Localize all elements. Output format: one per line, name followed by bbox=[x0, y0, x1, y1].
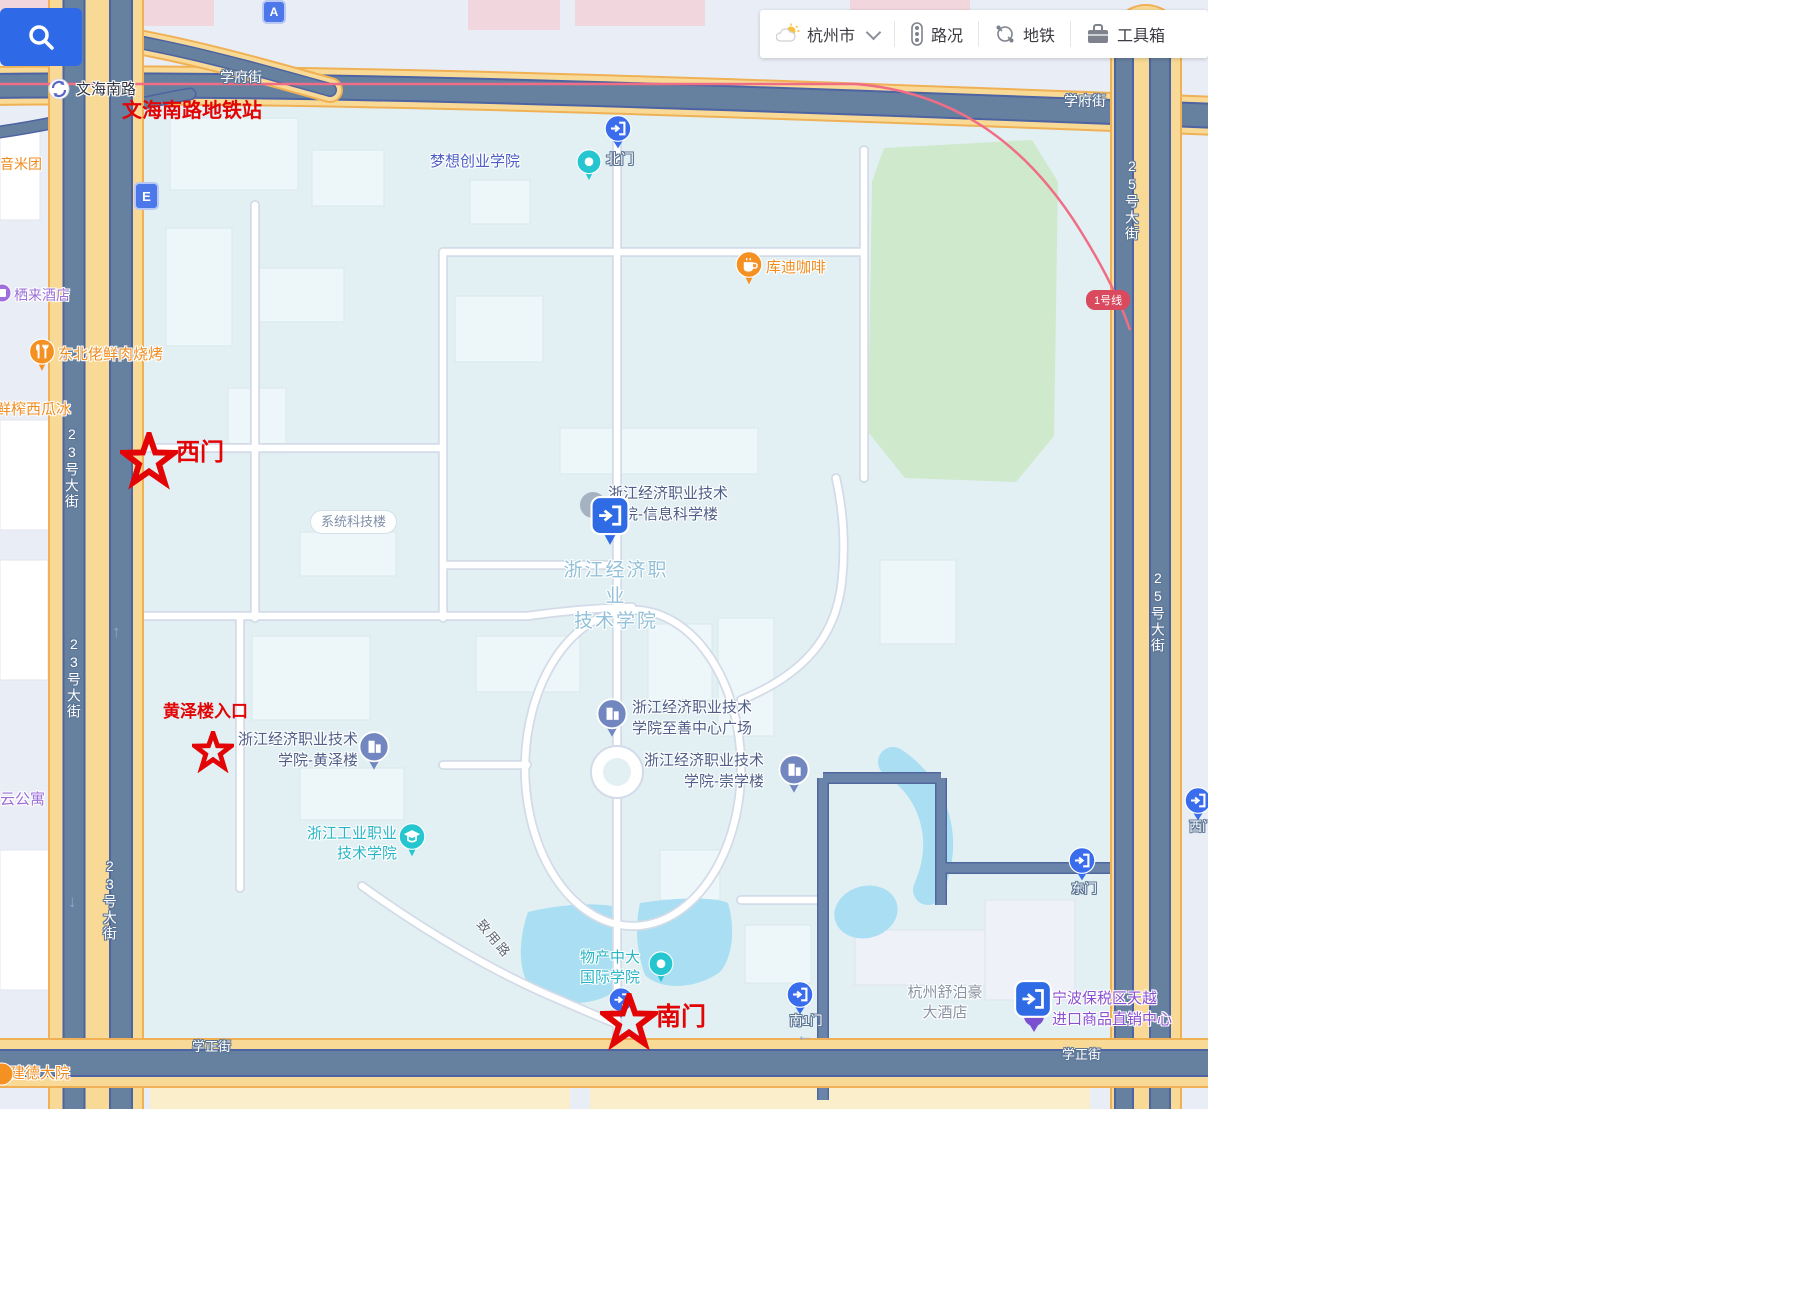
chongxue-building-pin[interactable] bbox=[778, 754, 810, 799]
jiande-pin[interactable] bbox=[0, 1062, 14, 1091]
poi-bbq[interactable]: 东北佬鲜肉烧烤 bbox=[58, 345, 163, 365]
west-gate-edge-pin[interactable] bbox=[1184, 786, 1208, 827]
annotation-south-gate: 南门 bbox=[656, 1000, 706, 1034]
poi-shubohao-hotel[interactable]: 杭州舒泊豪 大酒店 bbox=[886, 983, 1004, 1023]
metro-map-icon bbox=[994, 23, 1016, 45]
green-field bbox=[868, 140, 1058, 482]
poi-ningbo-center[interactable]: 宁波保税区天越 进口商品直销中心 bbox=[1052, 988, 1172, 1030]
toolbox-button[interactable]: 工具箱 bbox=[1086, 22, 1165, 46]
dream-academy-pin[interactable] bbox=[576, 148, 602, 187]
street-label-xuefu-2: 学府街 bbox=[1064, 92, 1106, 111]
poi-zhishan-plaza[interactable]: 浙江经济职业技术 学院至善中心广场 bbox=[632, 697, 752, 739]
info-building-entrance-icon[interactable] bbox=[590, 496, 630, 551]
city-selector[interactable]: 杭州市 bbox=[776, 22, 879, 46]
toolbox-label: 工具箱 bbox=[1117, 22, 1165, 46]
weather-icon bbox=[776, 23, 800, 45]
poi-yinmituan[interactable]: 音米团 bbox=[0, 155, 42, 174]
map-canvas[interactable]: 学府街 学府街 学正街 学正街 23号大街 23号大街 23号大街 25号大街 … bbox=[0, 0, 1208, 1109]
street-label-25-2: 25号大街 bbox=[1148, 570, 1167, 654]
annotation-metro-station: 文海南路地铁站 bbox=[122, 97, 262, 124]
poi-campus-name: 浙江经济职业 技术学院 bbox=[554, 558, 678, 635]
poi-wuchan-college[interactable]: 物产中大 国际学院 bbox=[570, 948, 650, 988]
poi-jiande[interactable]: 建德大院 bbox=[10, 1064, 70, 1084]
poi-qilai[interactable]: 栖来酒店 bbox=[14, 286, 70, 305]
gongye-college-pin[interactable] bbox=[398, 822, 426, 863]
kudi-coffee-pin[interactable] bbox=[735, 250, 763, 291]
toolbar-divider bbox=[1070, 21, 1071, 47]
street-label-23-2: 23号大街 bbox=[64, 636, 83, 720]
exit-badge-a: A bbox=[262, 0, 286, 24]
metro-label: 地铁 bbox=[1023, 22, 1055, 46]
annotation-west-gate: 西门 bbox=[176, 436, 224, 468]
poi-gongye-college[interactable]: 浙江工业职业 技术学院 bbox=[275, 824, 397, 864]
zhishan-building-pin[interactable] bbox=[596, 698, 628, 743]
poi-watermelon[interactable]: 鲜榨西瓜冰 bbox=[0, 400, 71, 420]
huangze-entrance-star-icon bbox=[192, 731, 234, 773]
search-button[interactable] bbox=[0, 8, 82, 66]
street-label-xuefu-1: 学府街 bbox=[220, 68, 262, 87]
traffic-label: 路况 bbox=[931, 22, 963, 46]
street-label-23-3: 23号大街 bbox=[100, 858, 119, 942]
toolbox-icon bbox=[1086, 23, 1110, 45]
south1-gate-pin[interactable] bbox=[786, 980, 814, 1021]
poi-kudi-coffee[interactable]: 库迪咖啡 bbox=[766, 258, 826, 278]
ningbo-entrance-icon[interactable] bbox=[1014, 980, 1052, 1025]
traffic-light-icon bbox=[910, 22, 924, 46]
search-icon bbox=[26, 22, 56, 52]
annotation-huangze-entrance: 黄泽楼入口 bbox=[163, 701, 248, 724]
street-label-23-1: 23号大街 bbox=[62, 426, 81, 510]
metro-line1-badge: 1号线 bbox=[1086, 290, 1130, 310]
traffic-button[interactable]: 路况 bbox=[910, 22, 963, 46]
city-name: 杭州市 bbox=[807, 22, 855, 46]
west-gate-star-icon bbox=[120, 432, 178, 490]
bbq-pin[interactable] bbox=[28, 338, 56, 377]
qilai-hotel-pin[interactable] bbox=[0, 283, 12, 308]
street-label-xuezheng-1: 学正街 bbox=[192, 1038, 231, 1056]
hangzhou-metro-logo-icon bbox=[48, 78, 70, 105]
down-arrow-icon: ↓ bbox=[68, 892, 77, 912]
street-label-xuezheng-2: 学正街 bbox=[1062, 1046, 1101, 1064]
poi-chongxue-building[interactable]: 浙江经济职业技术 学院-崇学楼 bbox=[638, 750, 764, 792]
toolbar-divider bbox=[894, 21, 895, 47]
page: { "toolbar": { "city": "杭州市", "traffic":… bbox=[0, 0, 1807, 1314]
huangze-building-pin[interactable] bbox=[358, 731, 390, 776]
poi-system-tech-building[interactable]: 系统科技楼 bbox=[310, 510, 397, 534]
east-gate-pin[interactable] bbox=[1068, 846, 1096, 887]
street-label-25-1: 25号大街 bbox=[1122, 158, 1141, 242]
toolbar-divider bbox=[978, 21, 979, 47]
up-arrow-icon: ↑ bbox=[112, 622, 121, 642]
poi-yun-apartment[interactable]: 云公寓 bbox=[0, 790, 45, 810]
south-gate-star-icon bbox=[600, 993, 658, 1051]
chevron-down-icon bbox=[866, 24, 882, 40]
metro-button[interactable]: 地铁 bbox=[994, 22, 1055, 46]
west-buildings bbox=[0, 130, 56, 990]
north-gate-pin[interactable] bbox=[604, 114, 632, 155]
top-toolbar: 杭州市 路况 地铁 工具箱 bbox=[760, 10, 1208, 58]
poi-dream-academy[interactable]: 梦想创业学院 bbox=[430, 152, 520, 172]
wuchan-college-pin[interactable] bbox=[648, 950, 674, 989]
exit-badge-e: E bbox=[134, 182, 159, 210]
